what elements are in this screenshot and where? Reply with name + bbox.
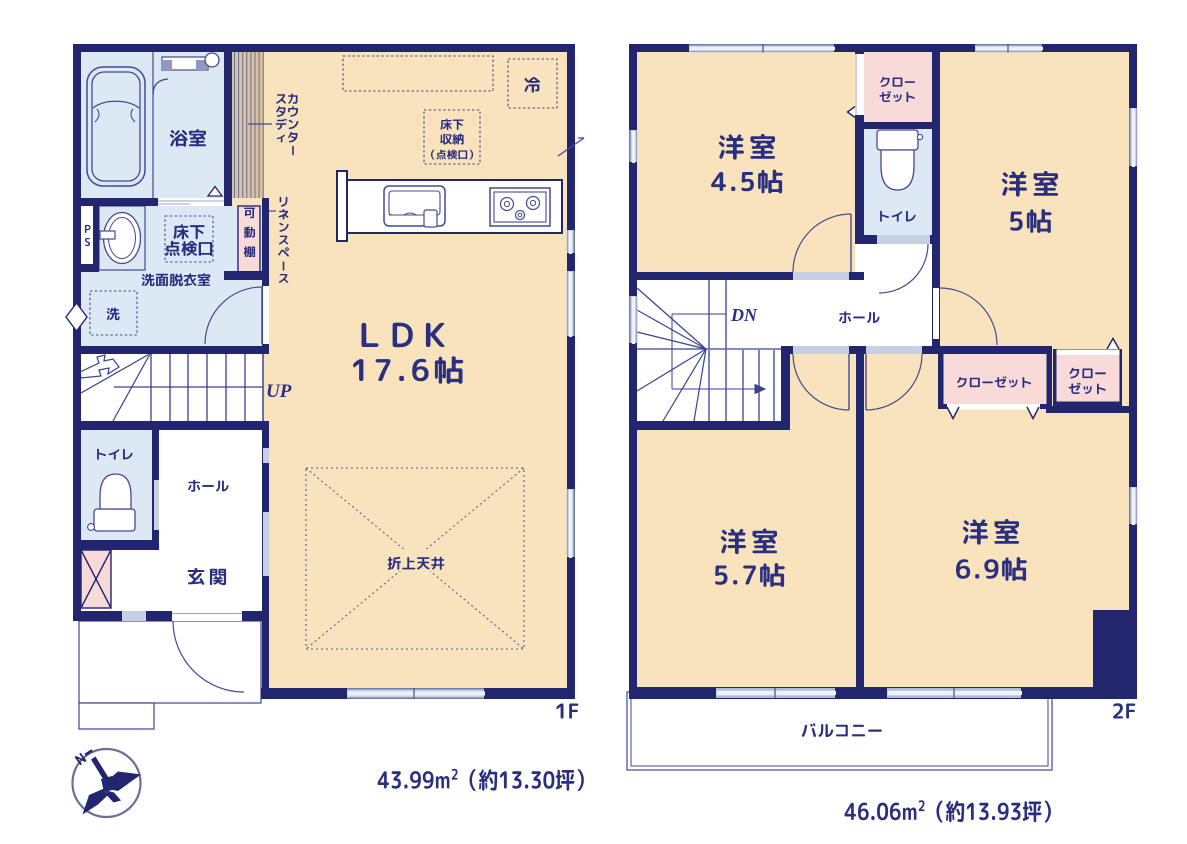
svg-text:UP: UP: [266, 381, 292, 402]
svg-text:DN: DN: [730, 305, 758, 325]
